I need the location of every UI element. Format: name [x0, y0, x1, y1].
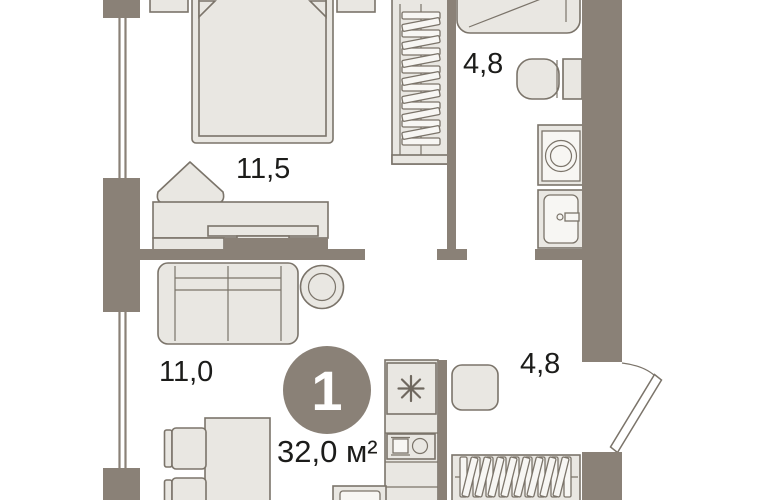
- bed: [192, 0, 333, 143]
- bedroom-area-label: 11,5: [236, 155, 290, 184]
- chair: [165, 428, 207, 469]
- bathroom-area-label: 4,8: [463, 50, 503, 79]
- kitchen-counter: [385, 360, 438, 500]
- wall-bath-bottom: [535, 249, 582, 260]
- plant: [301, 266, 344, 309]
- wall-left-top: [103, 0, 140, 18]
- door-leaf-icon: [611, 375, 662, 453]
- wall-hall-stub: [437, 249, 467, 260]
- wardrobe-hangers: [392, 0, 448, 164]
- floor-plan: 11,5 4,8 11,0 4,8 32,0 м² 1: [0, 0, 770, 500]
- chair: [165, 478, 207, 500]
- hallway-area-label: 4,8: [520, 350, 560, 379]
- rooms-count-value: 1: [311, 358, 342, 423]
- wall-bedroom-living: [103, 249, 365, 260]
- rooms-count-badge: 1: [283, 346, 371, 434]
- shower: [457, 0, 580, 33]
- pouf: [157, 162, 223, 204]
- total-area-label: 32,0 м²: [277, 436, 378, 467]
- toilet: [517, 59, 582, 99]
- stool: [452, 365, 498, 410]
- sofa: [158, 263, 298, 344]
- wall-kitchen: [438, 360, 447, 500]
- kitchen-sink: [387, 434, 435, 459]
- wall-media-block: [224, 238, 328, 250]
- bathroom-sink: [538, 190, 584, 248]
- entry-wardrobe-hangers: [452, 455, 580, 500]
- wall-right-top: [582, 0, 622, 362]
- wall-right-bottom: [582, 452, 622, 500]
- oven: [333, 486, 386, 500]
- entrance-door: [611, 363, 662, 453]
- floor-plan-drawing: [0, 0, 770, 500]
- wall-wardrobe-bath: [447, 0, 456, 260]
- living-area-label: 11,0: [159, 358, 213, 387]
- stove-burner-icon: [399, 376, 424, 401]
- wall-left-pier: [103, 178, 140, 312]
- wall-left-bottom: [103, 468, 140, 500]
- washing-machine: [538, 125, 584, 185]
- dining-table: [205, 418, 270, 500]
